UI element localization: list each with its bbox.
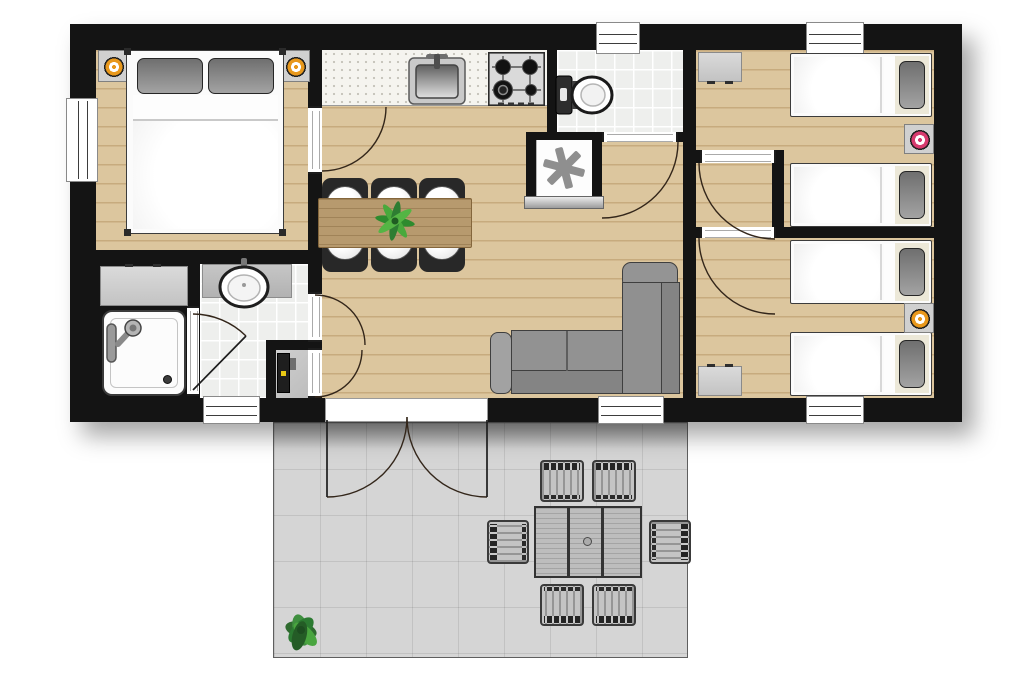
outdoor-chair bbox=[487, 520, 529, 564]
window bbox=[66, 98, 98, 182]
wall bbox=[772, 163, 784, 227]
wall bbox=[683, 227, 696, 398]
door-bedroom-right-top bbox=[700, 150, 776, 163]
pillow bbox=[899, 61, 925, 109]
shower-door bbox=[187, 306, 199, 396]
bathroom-cabinet bbox=[100, 266, 188, 306]
utility-unit-base bbox=[524, 196, 604, 209]
shower-drain-icon bbox=[163, 375, 172, 384]
window bbox=[596, 22, 640, 54]
single-bed bbox=[790, 163, 932, 227]
sofa-backrest bbox=[661, 282, 680, 394]
sofa-backrest bbox=[511, 370, 623, 394]
bedside-lamp-pink-icon bbox=[909, 129, 931, 151]
outdoor-chair bbox=[592, 460, 636, 502]
single-bed bbox=[790, 332, 932, 396]
pillow bbox=[137, 58, 203, 94]
outdoor-chair bbox=[540, 584, 584, 626]
sofa-headrest bbox=[622, 262, 678, 284]
door-tech-closet bbox=[308, 348, 322, 398]
building-shadow-on-terrace bbox=[274, 423, 687, 449]
umbrella-hole bbox=[583, 537, 592, 546]
outdoor-chair bbox=[540, 460, 584, 502]
outdoor-chair bbox=[649, 520, 691, 564]
window bbox=[806, 22, 864, 54]
pillow bbox=[208, 58, 274, 94]
single-bed bbox=[790, 53, 932, 117]
bedside-lamp-orange-icon bbox=[909, 308, 931, 330]
door-bedroom-master bbox=[308, 106, 322, 174]
potted-plant-icon bbox=[272, 600, 330, 660]
pillow bbox=[899, 340, 925, 388]
floor-plan bbox=[0, 0, 1024, 682]
door-bathroom bbox=[308, 292, 322, 342]
door-toilet bbox=[602, 132, 678, 142]
lamp-shelf bbox=[904, 124, 934, 154]
pillow bbox=[899, 171, 925, 219]
toilet-icon bbox=[556, 72, 606, 118]
bedside-lamp-orange-icon bbox=[285, 56, 307, 78]
sofa-seam bbox=[566, 331, 568, 371]
gas-hob-icon bbox=[488, 52, 545, 106]
door-bedroom-right-bottom bbox=[700, 227, 776, 238]
washbasin-icon bbox=[216, 258, 274, 312]
sofa-armrest bbox=[490, 332, 512, 394]
outdoor-table-divider bbox=[567, 508, 570, 576]
cabinet bbox=[698, 366, 742, 396]
kitchen-sink-icon bbox=[408, 54, 466, 106]
outdoor-chair bbox=[592, 584, 636, 626]
single-bed bbox=[790, 240, 932, 304]
double-bed bbox=[126, 50, 284, 234]
pillow bbox=[899, 248, 925, 296]
hand-shower-icon bbox=[104, 314, 150, 368]
window bbox=[806, 396, 864, 424]
lamp-shelf bbox=[904, 303, 934, 333]
french-door-opening bbox=[325, 398, 488, 422]
sofa-chaise bbox=[622, 282, 662, 394]
duvet-fold bbox=[133, 95, 278, 121]
meter-warning-mark bbox=[281, 371, 286, 376]
asterisk-icon bbox=[540, 144, 588, 192]
meter-box-module bbox=[290, 358, 296, 370]
table-plant-icon bbox=[369, 195, 421, 247]
window bbox=[203, 396, 260, 424]
window bbox=[598, 396, 664, 424]
wall bbox=[683, 24, 696, 163]
bedside-lamp-orange-icon bbox=[103, 56, 125, 78]
wall bbox=[266, 340, 276, 398]
wall bbox=[70, 250, 322, 264]
outdoor-table-divider bbox=[601, 508, 604, 576]
cabinet bbox=[698, 52, 742, 82]
